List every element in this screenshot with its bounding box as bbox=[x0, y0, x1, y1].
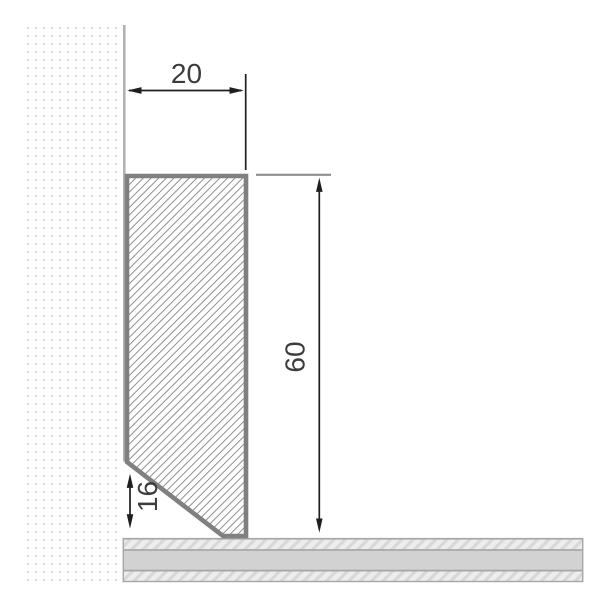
arrowhead-left-icon bbox=[127, 87, 141, 94]
floor-bottom-screed-layer bbox=[124, 572, 582, 581]
dimension-label-width: 20 bbox=[171, 58, 202, 89]
floor-middle-slab-layer bbox=[124, 551, 582, 570]
drawing-canvas: 20 60 16 bbox=[0, 0, 604, 604]
arrowhead-up-icon bbox=[316, 178, 323, 192]
dimension-width-20: 20 bbox=[127, 58, 246, 170]
arrowhead-right-icon bbox=[230, 87, 244, 94]
dimension-height-60: 60 bbox=[256, 175, 331, 533]
dimension-label-bevel: 16 bbox=[132, 481, 163, 512]
dimension-bevel-16: 16 bbox=[127, 474, 163, 529]
floor-top-screed-layer bbox=[124, 540, 582, 550]
arrowhead-down-icon bbox=[127, 514, 134, 528]
floor-section bbox=[124, 539, 583, 582]
profile-drawing: 20 60 16 bbox=[0, 0, 604, 604]
wall-section bbox=[25, 25, 123, 582]
dimension-label-height: 60 bbox=[280, 341, 311, 372]
arrowhead-down-icon bbox=[316, 519, 323, 533]
